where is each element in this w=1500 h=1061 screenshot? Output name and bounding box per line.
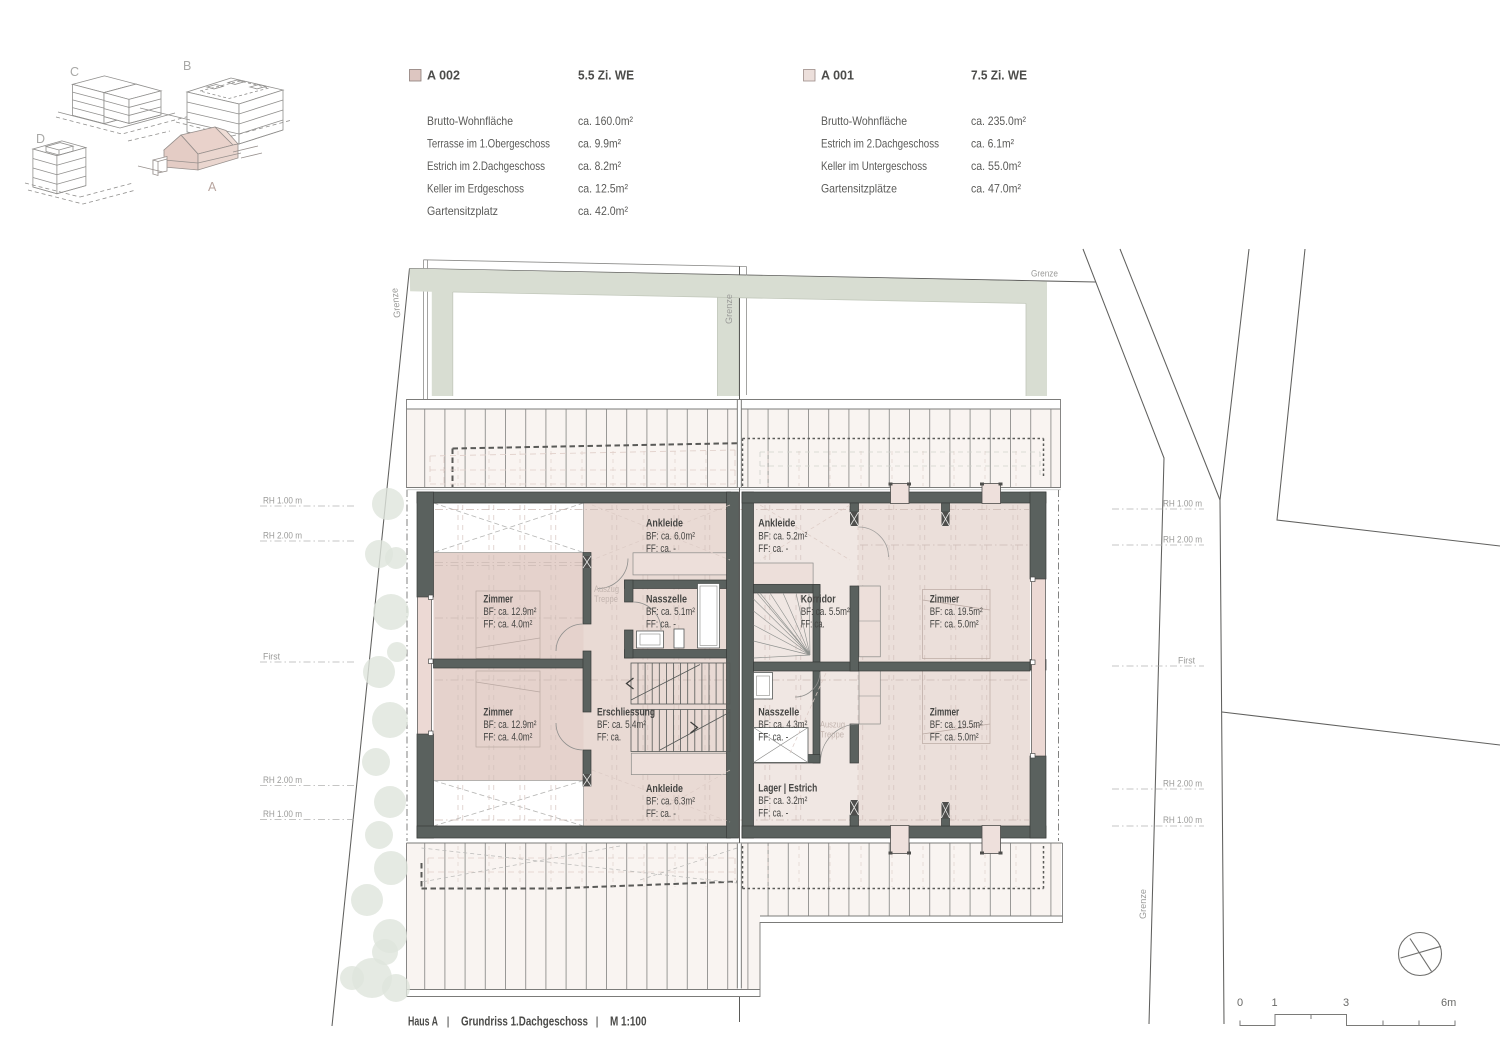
svg-text:BF: ca. 5.5m²: BF: ca. 5.5m² [801, 606, 850, 618]
svg-text:Zimmer: Zimmer [483, 593, 513, 605]
svg-text:Auszug: Auszug [820, 720, 845, 730]
svg-text:ca. 47.0m²: ca. 47.0m² [971, 182, 1021, 196]
svg-text:ca. 12.5m²: ca. 12.5m² [578, 182, 628, 196]
svg-text:BF: ca. 19.5m²: BF: ca. 19.5m² [930, 719, 983, 731]
svg-text:A 001: A 001 [821, 69, 854, 83]
svg-text:RH 2.00 m: RH 2.00 m [1163, 535, 1202, 546]
svg-text:Erschliessung: Erschliessung [597, 707, 655, 719]
svg-text:1: 1 [1272, 997, 1278, 1009]
svg-text:M 1:100: M 1:100 [610, 1014, 647, 1029]
svg-text:FF: ca. 4.0m²: FF: ca. 4.0m² [483, 619, 532, 631]
svg-text:Lager | Estrich: Lager | Estrich [758, 783, 817, 795]
svg-text:Grenze: Grenze [724, 294, 735, 324]
svg-text:BF: ca. 19.5m²: BF: ca. 19.5m² [930, 606, 983, 618]
svg-text:ca. 55.0m²: ca. 55.0m² [971, 159, 1021, 173]
svg-text:RH 1.00 m: RH 1.00 m [1163, 499, 1202, 510]
svg-text:BF: ca. 5.1m²: BF: ca. 5.1m² [646, 606, 695, 618]
svg-text:ca. 6.1m²: ca. 6.1m² [971, 137, 1014, 151]
svg-text:First: First [263, 652, 280, 663]
svg-text:Grenze: Grenze [1031, 269, 1058, 279]
svg-text:|: | [447, 1014, 450, 1028]
svg-text:FF: ca.: FF: ca. [597, 732, 621, 744]
svg-text:A: A [208, 180, 217, 194]
svg-text:Nasszelle: Nasszelle [758, 707, 799, 719]
svg-text:RH 2.00 m: RH 2.00 m [263, 775, 302, 786]
svg-text:5.5 Zi. WE: 5.5 Zi. WE [578, 69, 634, 83]
svg-text:FF: ca. -: FF: ca. - [646, 619, 676, 631]
svg-text:BF: ca. 3.2m²: BF: ca. 3.2m² [758, 795, 807, 807]
svg-text:BF: ca. 12.9m²: BF: ca. 12.9m² [483, 719, 536, 731]
svg-text:A 002: A 002 [427, 69, 460, 83]
svg-text:FF: ca. -: FF: ca. - [758, 732, 788, 744]
svg-text:BF: ca. 6.0m²: BF: ca. 6.0m² [646, 531, 695, 543]
svg-text:ca. 235.0m²: ca. 235.0m² [971, 114, 1026, 128]
svg-text:RH 1.00 m: RH 1.00 m [263, 496, 302, 507]
svg-text:Keller im Erdgeschoss: Keller im Erdgeschoss [427, 182, 524, 196]
svg-text:First: First [1178, 656, 1195, 667]
svg-text:FF: ca. -: FF: ca. - [758, 808, 788, 820]
svg-text:6m: 6m [1441, 997, 1456, 1009]
svg-text:Ankleide: Ankleide [758, 518, 795, 530]
svg-text:7.5 Zi. WE: 7.5 Zi. WE [971, 69, 1027, 83]
svg-text:FF: ca. 5.0m²: FF: ca. 5.0m² [930, 732, 979, 744]
svg-text:Zimmer: Zimmer [930, 593, 960, 605]
svg-text:FF: ca. -: FF: ca. - [646, 543, 676, 555]
svg-text:Grundriss 1.Dachgeschoss: Grundriss 1.Dachgeschoss [461, 1014, 588, 1029]
svg-text:Zimmer: Zimmer [930, 707, 960, 719]
svg-text:Estrich im 2.Dachgeschoss: Estrich im 2.Dachgeschoss [821, 137, 939, 151]
svg-text:C: C [70, 65, 79, 79]
svg-text:Brutto-Wohnfläche: Brutto-Wohnfläche [427, 114, 513, 128]
svg-text:RH 1.00 m: RH 1.00 m [263, 809, 302, 820]
svg-text:Treppe: Treppe [594, 594, 618, 604]
svg-text:RH 1.00 m: RH 1.00 m [1163, 815, 1202, 826]
svg-text:3: 3 [1343, 997, 1349, 1009]
svg-text:Brutto-Wohnfläche: Brutto-Wohnfläche [821, 114, 907, 128]
svg-text:Korridor: Korridor [801, 593, 837, 605]
svg-text:FF: ca. 5.0m²: FF: ca. 5.0m² [930, 619, 979, 631]
svg-text:Haus A: Haus A [408, 1014, 438, 1029]
svg-text:Zimmer: Zimmer [483, 707, 513, 719]
svg-text:BF: ca. 5.2m²: BF: ca. 5.2m² [758, 531, 807, 543]
svg-text:BF: ca. 4.3m²: BF: ca. 4.3m² [758, 719, 807, 731]
svg-text:Gartensitzplatz: Gartensitzplatz [427, 204, 498, 218]
svg-text:FF: ca. 4.0m²: FF: ca. 4.0m² [483, 732, 532, 744]
svg-text:|: | [596, 1014, 599, 1028]
svg-text:RH 2.00 m: RH 2.00 m [263, 531, 302, 542]
svg-text:BF: ca. 6.3m²: BF: ca. 6.3m² [646, 796, 695, 808]
svg-text:FF: ca.: FF: ca. [801, 619, 825, 631]
svg-text:RH 2.00 m: RH 2.00 m [1163, 779, 1202, 790]
svg-text:FF: ca. -: FF: ca. - [758, 543, 788, 555]
svg-text:Auszug: Auszug [594, 584, 619, 594]
svg-text:Estrich im 2.Dachgeschoss: Estrich im 2.Dachgeschoss [427, 159, 545, 173]
svg-text:FF: ca. -: FF: ca. - [646, 808, 676, 820]
svg-text:Treppe: Treppe [820, 730, 844, 740]
svg-text:Keller im Untergeschoss: Keller im Untergeschoss [821, 159, 927, 173]
svg-text:Grenze: Grenze [1138, 889, 1149, 919]
svg-text:Terrasse im 1.Obergeschoss: Terrasse im 1.Obergeschoss [427, 137, 550, 151]
svg-text:Ankleide: Ankleide [646, 783, 683, 795]
svg-text:BF: ca. 12.9m²: BF: ca. 12.9m² [483, 606, 536, 618]
svg-text:Ankleide: Ankleide [646, 518, 683, 530]
svg-text:ca. 9.9m²: ca. 9.9m² [578, 137, 621, 151]
svg-text:ca. 160.0m²: ca. 160.0m² [578, 114, 633, 128]
svg-text:Nasszelle: Nasszelle [646, 593, 687, 605]
svg-text:0: 0 [1237, 997, 1243, 1009]
svg-text:ca. 8.2m²: ca. 8.2m² [578, 159, 621, 173]
svg-text:Gartensitzplätze: Gartensitzplätze [821, 182, 897, 196]
svg-text:B: B [183, 59, 191, 73]
svg-text:D: D [36, 132, 45, 146]
svg-text:ca. 42.0m²: ca. 42.0m² [578, 204, 628, 218]
svg-text:BF: ca. 5.4m²: BF: ca. 5.4m² [597, 719, 646, 731]
